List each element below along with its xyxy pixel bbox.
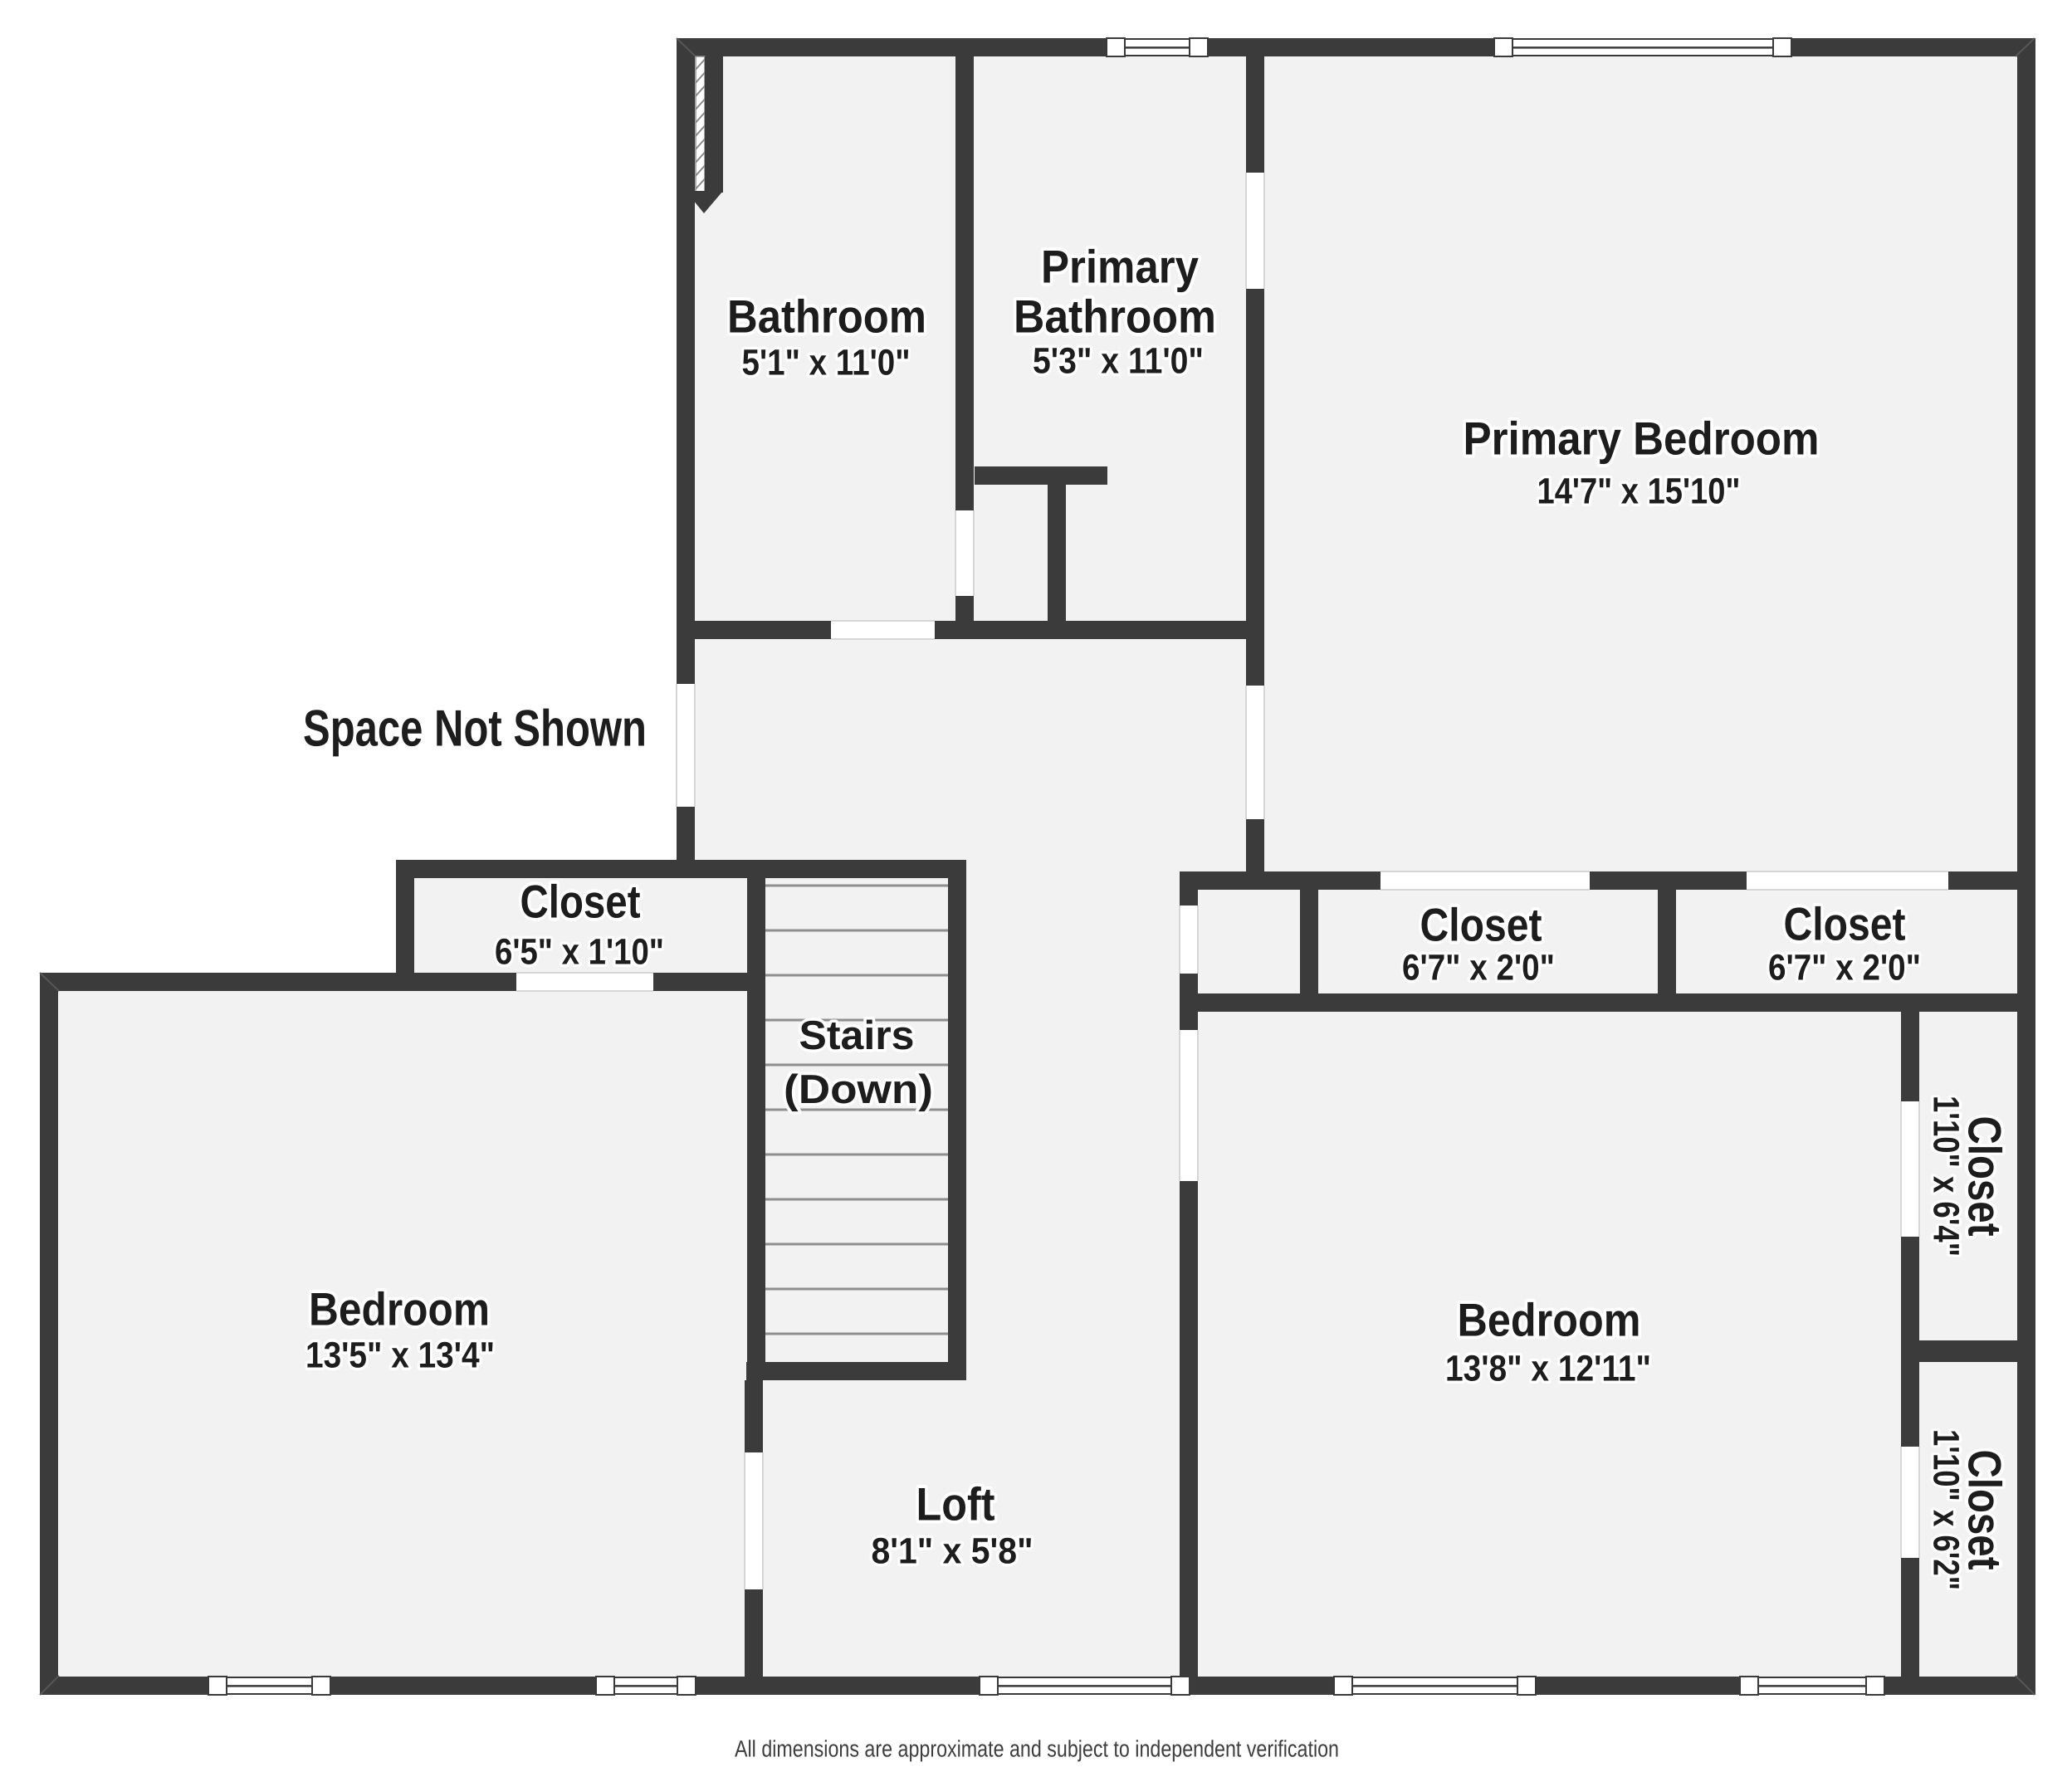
- svg-text:1'10" x 6'2": 1'10" x 6'2": [1926, 1429, 1967, 1590]
- svg-text:8'1" x 5'8": 8'1" x 5'8": [872, 1531, 1034, 1572]
- svg-text:1'10" x 6'4": 1'10" x 6'4": [1926, 1096, 1967, 1257]
- svg-text:6'5" x 1'10": 6'5" x 1'10": [495, 932, 664, 973]
- svg-text:(Down): (Down): [784, 1067, 933, 1112]
- svg-text:Space Not Shown: Space Not Shown: [303, 701, 647, 758]
- svg-text:Primary: Primary: [1041, 241, 1199, 293]
- svg-text:Bathroom: Bathroom: [1014, 290, 1216, 343]
- svg-text:13'8" x 12'11": 13'8" x 12'11": [1445, 1349, 1651, 1389]
- svg-text:Closet: Closet: [1420, 899, 1542, 951]
- svg-text:6'7" x 2'0": 6'7" x 2'0": [1768, 948, 1921, 989]
- svg-text:Closet: Closet: [520, 876, 641, 928]
- svg-text:Stairs: Stairs: [799, 1013, 915, 1058]
- svg-text:5'1" x 11'0": 5'1" x 11'0": [742, 343, 911, 383]
- svg-text:Loft: Loft: [916, 1478, 995, 1530]
- svg-text:5'3" x 11'0": 5'3" x 11'0": [1033, 341, 1204, 382]
- svg-text:Closet: Closet: [1784, 898, 1906, 950]
- svg-text:Primary Bedroom: Primary Bedroom: [1464, 412, 1820, 465]
- svg-text:6'7" x 2'0": 6'7" x 2'0": [1402, 948, 1555, 989]
- svg-text:All dimensions are approximate: All dimensions are approximate and subje…: [735, 1736, 1339, 1762]
- svg-text:13'5" x 13'4": 13'5" x 13'4": [305, 1335, 495, 1376]
- svg-text:Bedroom: Bedroom: [1458, 1294, 1641, 1346]
- svg-text:14'7" x 15'10": 14'7" x 15'10": [1537, 471, 1741, 512]
- svg-text:Bathroom: Bathroom: [727, 290, 926, 343]
- svg-text:Bedroom: Bedroom: [309, 1283, 490, 1335]
